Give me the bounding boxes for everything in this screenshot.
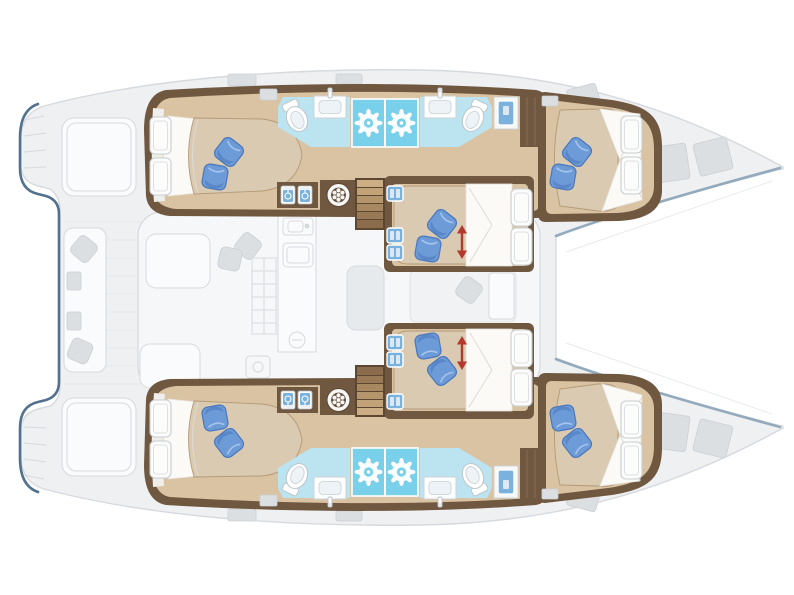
gray-cushion-icon bbox=[67, 272, 81, 290]
gray-cushion-icon bbox=[217, 246, 243, 272]
floor-plan-svg bbox=[0, 0, 794, 595]
gray-cushion-icon bbox=[67, 312, 81, 330]
nav-table bbox=[347, 266, 384, 330]
deck-hatch-icon bbox=[228, 74, 256, 86]
deck-hatch-icon bbox=[228, 509, 256, 521]
deck-hatch-icon bbox=[336, 74, 362, 84]
spare-berth-dimmed bbox=[410, 270, 516, 322]
deck-hatch-icon bbox=[336, 511, 362, 521]
salon-sofa bbox=[146, 234, 210, 288]
cockpit-lounge-pad bbox=[62, 118, 136, 196]
catamaran-floor-plan: Sailing catamaran accommodation deck pla… bbox=[0, 0, 794, 595]
cockpit-lounge-pad bbox=[62, 398, 136, 476]
